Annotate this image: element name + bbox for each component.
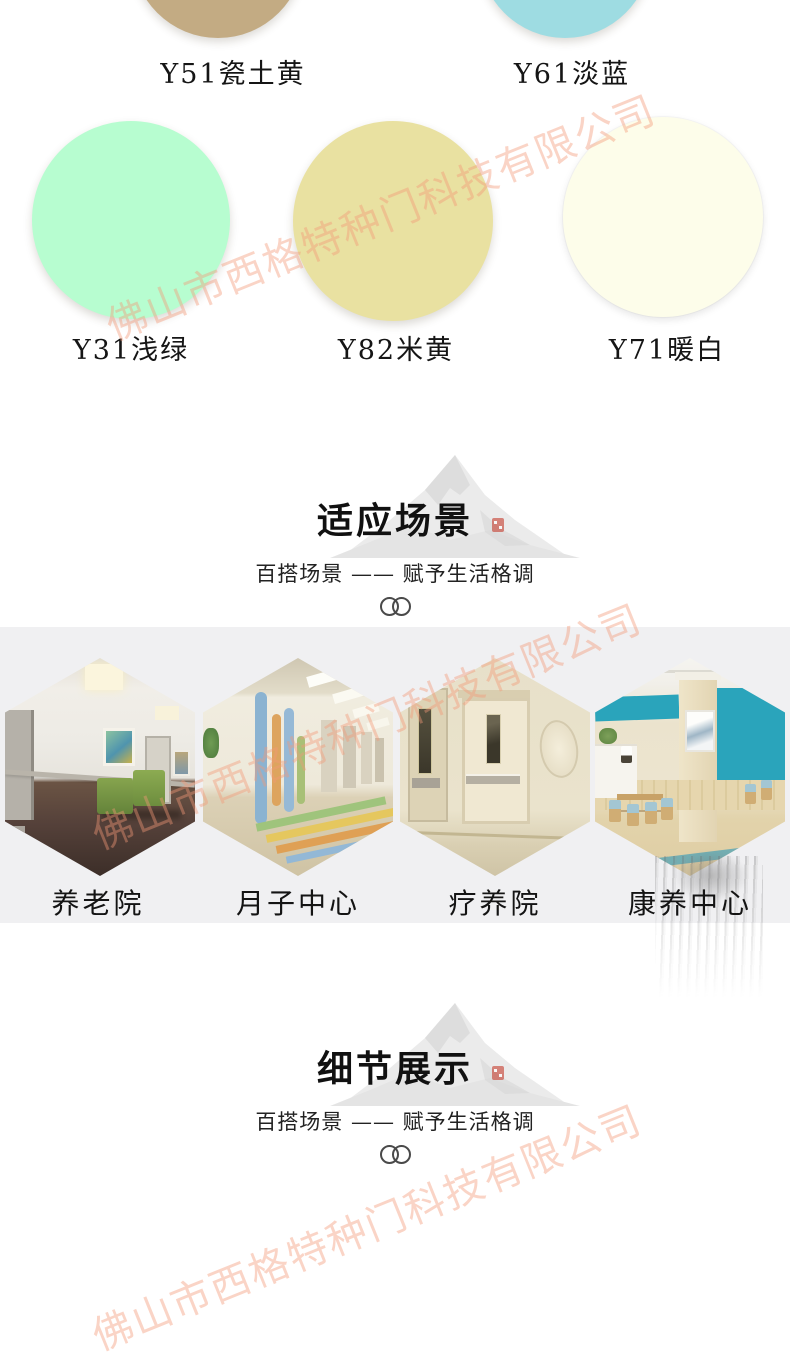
corridor-doors [321, 720, 337, 792]
green-armchair [97, 778, 133, 814]
swatch-circle-y31 [32, 121, 230, 319]
scenes-section-title: 适应场景 [0, 492, 790, 544]
plant [599, 728, 617, 744]
pillar-cap [675, 672, 721, 680]
wall-picture [103, 728, 135, 766]
wall-decal-bar [255, 692, 267, 824]
door-frame [458, 690, 530, 698]
dining-chair [745, 784, 756, 804]
swatch-label-y82: Y82米黄 [338, 328, 454, 367]
side-door-plate [412, 778, 440, 788]
corridor-doors [361, 732, 372, 784]
flower-vase [621, 746, 632, 763]
scene-label-nursing-home: 养老院 [8, 882, 188, 922]
scenes-section-subtitle: 百搭场景 —— 赋予生活格调 [0, 558, 790, 588]
swatch-label-y61: Y61淡蓝 [514, 52, 630, 91]
dining-chair [627, 804, 639, 826]
wall-picture [173, 750, 190, 776]
door-push-bar [466, 774, 520, 784]
corridor-door [5, 710, 34, 820]
swatch-circle-y61 [479, 0, 651, 38]
dining-chair [645, 802, 657, 824]
ceiling-light [155, 706, 179, 720]
details-section-title: 细节展示 [0, 1040, 790, 1092]
scene-label-sanatorium: 疗养院 [405, 882, 585, 922]
interlocked-rings-icon [0, 596, 790, 614]
seal-stamp-icon [492, 1066, 504, 1080]
ink-wash-streak [655, 856, 763, 998]
corridor-doors [343, 726, 356, 788]
swatch-label-y31: Y31浅绿 [73, 328, 189, 367]
section-header-scenes: 适应场景 百搭场景 —— 赋予生活格调 [0, 448, 790, 614]
wall-decal-bar [297, 736, 305, 804]
corridor-doors [375, 738, 384, 782]
swatch-circle-y51 [132, 0, 304, 38]
plant [203, 728, 219, 758]
swatch-circle-y82 [293, 121, 493, 321]
swatch-label-y51: Y51瓷土黄 [160, 52, 305, 91]
scene-label-postpartum-center: 月子中心 [208, 882, 388, 922]
green-armchair [133, 770, 165, 806]
pillar-picture [685, 710, 715, 752]
dining-chair [661, 798, 673, 820]
swatch-circle-y71 [563, 117, 763, 317]
side-door-window [418, 708, 432, 774]
wall-decal-bar [272, 714, 281, 806]
swatch-label-y71: Y71暖白 [609, 328, 725, 367]
pillar [679, 678, 717, 842]
dining-table [617, 794, 663, 800]
main-door-window [486, 714, 501, 764]
scene-label-wellness-center: 康养中心 [600, 882, 780, 922]
seal-stamp-icon [492, 518, 504, 532]
wall-decal-bar [284, 708, 294, 812]
dining-chair [609, 800, 621, 822]
section-header-details: 细节展示 百搭场景 —— 赋予生活格调 [0, 996, 790, 1162]
dining-chair [761, 780, 772, 800]
details-section-subtitle: 百搭场景 —— 赋予生活格调 [0, 1106, 790, 1136]
